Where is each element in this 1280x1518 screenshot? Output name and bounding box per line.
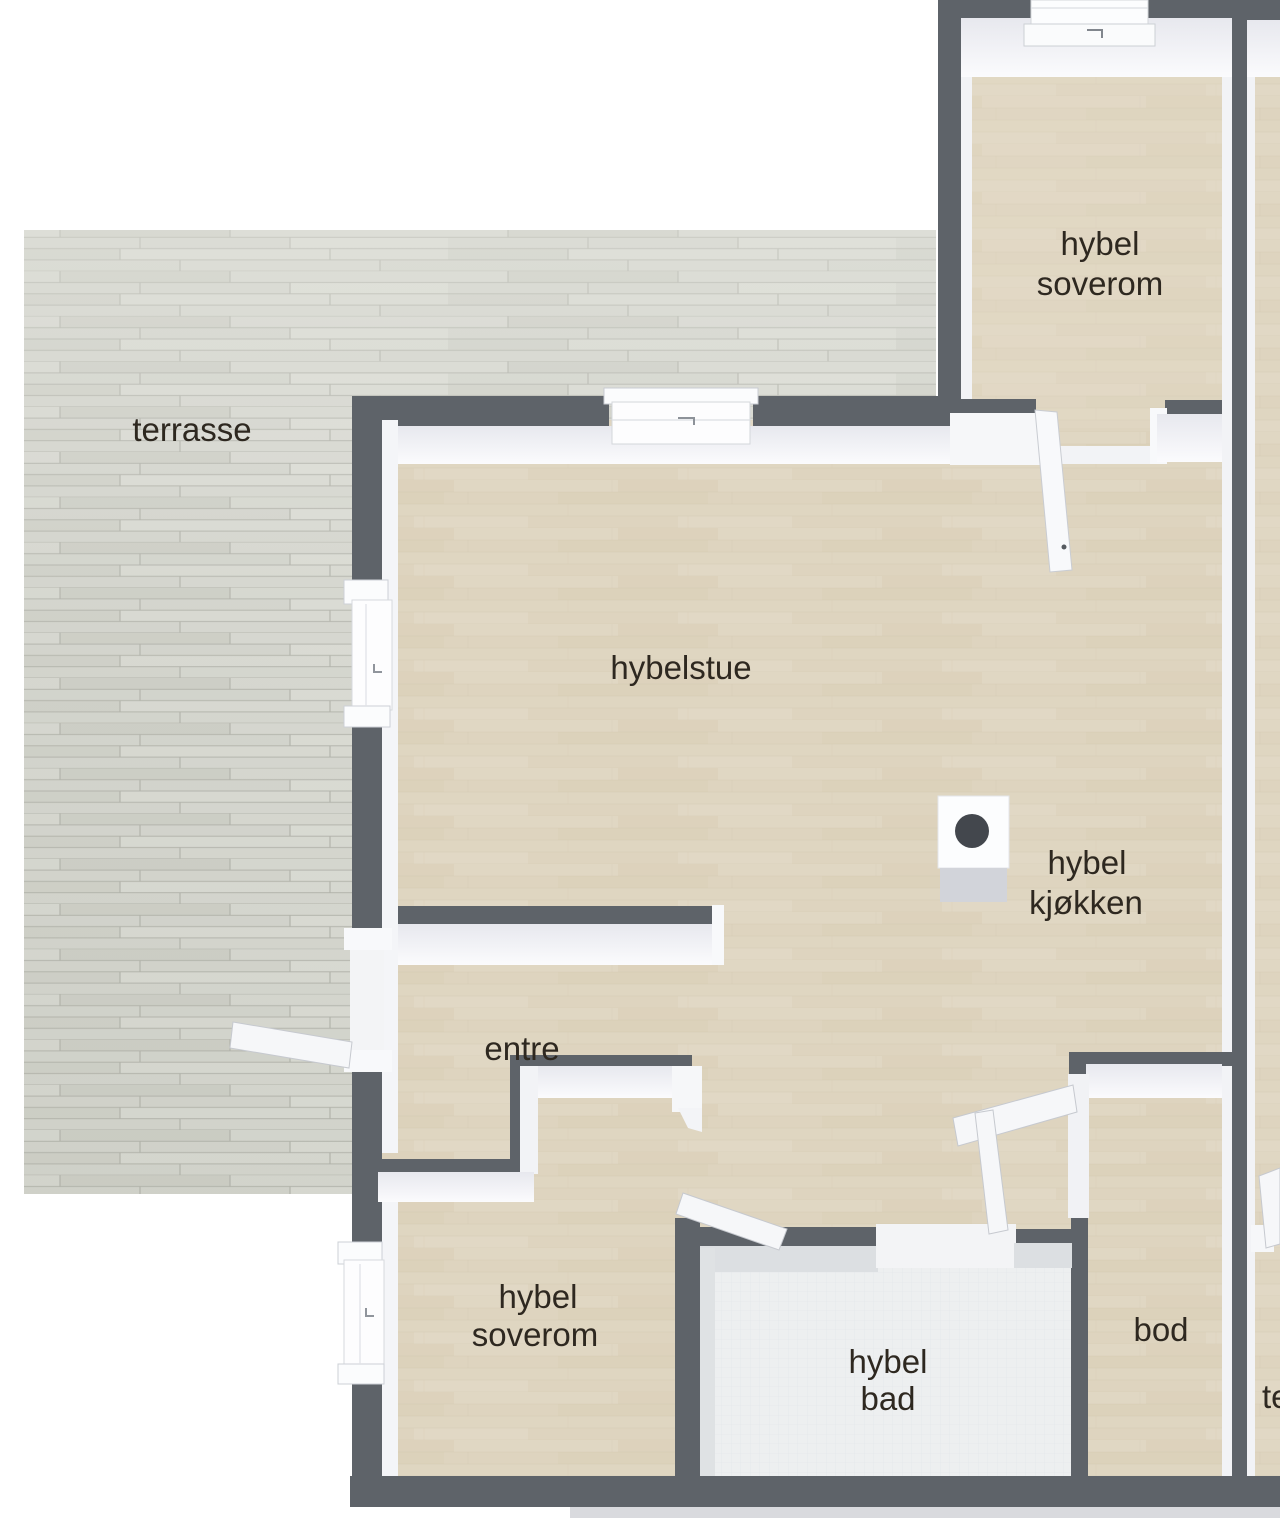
- svg-text:terrasse: terrasse: [132, 411, 251, 448]
- svg-text:entre: entre: [484, 1030, 559, 1067]
- svg-text:soverom: soverom: [472, 1316, 599, 1353]
- svg-text:hybel: hybel: [849, 1343, 928, 1380]
- svg-text:kjøkken: kjøkken: [1029, 884, 1143, 921]
- svg-text:soverom: soverom: [1037, 265, 1164, 302]
- svg-text:hybel: hybel: [1048, 844, 1127, 881]
- svg-text:hybel: hybel: [499, 1278, 578, 1315]
- svg-text:bad: bad: [860, 1380, 915, 1417]
- svg-text:bod: bod: [1133, 1311, 1188, 1348]
- svg-text:te: te: [1262, 1378, 1280, 1415]
- svg-text:hybelstue: hybelstue: [610, 649, 751, 686]
- svg-text:hybel: hybel: [1061, 225, 1140, 262]
